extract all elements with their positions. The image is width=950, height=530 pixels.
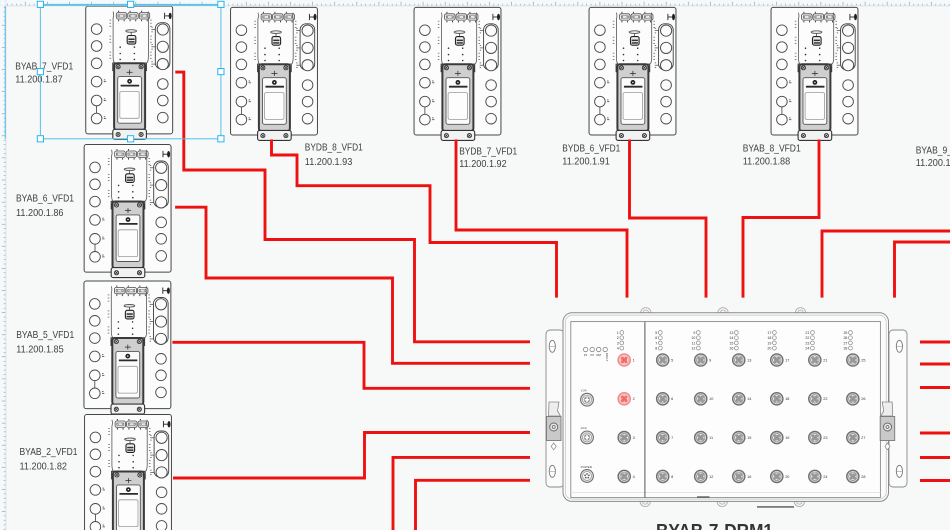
svg-text:BYAB_6_VFD1: BYAB_6_VFD1: [16, 193, 74, 204]
svg-text:11.200.1.91: 11.200.1.91: [562, 157, 610, 168]
svg-text:22: 22: [805, 336, 809, 340]
svg-text:11.200.1.86: 11.200.1.86: [16, 208, 64, 219]
svg-text:BYAB_7_VFD1: BYAB_7_VFD1: [15, 62, 73, 73]
svg-text:18: 18: [767, 336, 771, 340]
svg-text:25: 25: [861, 358, 865, 362]
svg-text:3: 3: [633, 436, 635, 440]
svg-text:12: 12: [709, 475, 713, 479]
svg-text:12: 12: [691, 347, 695, 351]
svg-text:7: 7: [655, 341, 657, 345]
svg-text:11: 11: [692, 341, 696, 345]
svg-text:6: 6: [655, 336, 657, 340]
svg-text:22: 22: [823, 397, 827, 401]
svg-text:8: 8: [671, 475, 673, 479]
svg-text:11.200.1.87: 11.200.1.87: [15, 74, 63, 85]
svg-text:20: 20: [767, 347, 771, 351]
svg-text:19: 19: [785, 436, 789, 440]
svg-text:27: 27: [843, 341, 847, 345]
svg-text:4: 4: [617, 347, 619, 351]
svg-text:11.200.1.88: 11.200.1.88: [743, 157, 791, 168]
svg-text:28: 28: [861, 475, 865, 479]
svg-text:BYAB-7-DRM1: BYAB-7-DRM1: [656, 521, 773, 530]
svg-text:11.200.1.85: 11.200.1.85: [16, 344, 64, 355]
svg-text:4: 4: [633, 475, 635, 479]
svg-text:7: 7: [671, 436, 673, 440]
svg-text:P1: P1: [584, 353, 588, 357]
svg-text:21: 21: [805, 331, 809, 335]
svg-text:BYAB_9_VFD1: BYAB_9_VFD1: [916, 145, 950, 156]
svg-text:5: 5: [671, 358, 673, 362]
svg-text:14: 14: [729, 336, 733, 340]
svg-text:P2: P2: [590, 353, 594, 357]
svg-text:15: 15: [747, 436, 751, 440]
svg-text:5: 5: [655, 331, 657, 335]
svg-text:2: 2: [617, 336, 619, 340]
svg-text:26: 26: [843, 336, 847, 340]
svg-text:RM: RM: [597, 353, 602, 357]
svg-text:14: 14: [747, 397, 751, 401]
svg-text:10: 10: [709, 397, 713, 401]
svg-text:9: 9: [693, 331, 695, 335]
svg-text:17: 17: [785, 358, 789, 362]
svg-text:2: 2: [633, 397, 635, 401]
svg-text:26: 26: [861, 397, 865, 401]
svg-text:28: 28: [843, 347, 847, 351]
svg-text:BYDB_7_VFD1: BYDB_7_VFD1: [459, 146, 517, 157]
svg-text:11.200.1.89: 11.200.1.89: [916, 158, 950, 169]
svg-text:1: 1: [617, 331, 619, 335]
svg-text:13: 13: [747, 358, 751, 362]
svg-text:24: 24: [805, 347, 809, 351]
svg-text:17: 17: [767, 331, 771, 335]
svg-text:11.200.1.93: 11.200.1.93: [305, 157, 353, 168]
svg-text:24: 24: [823, 475, 827, 479]
svg-text:BYDB_8_VFD1: BYDB_8_VFD1: [305, 143, 363, 154]
svg-text:11: 11: [709, 436, 713, 440]
svg-text:6: 6: [671, 397, 673, 401]
svg-text:3: 3: [617, 341, 619, 345]
svg-text:BYAB_5_VFD1: BYAB_5_VFD1: [16, 330, 74, 341]
svg-text:16: 16: [729, 347, 733, 351]
svg-text:19: 19: [767, 341, 771, 345]
svg-text:9: 9: [709, 358, 711, 362]
svg-text:8: 8: [655, 347, 657, 351]
svg-text:15: 15: [729, 341, 733, 345]
svg-text:ACA: ACA: [581, 426, 587, 430]
svg-text:10: 10: [691, 336, 695, 340]
svg-text:1: 1: [633, 358, 635, 362]
svg-text:21: 21: [823, 358, 827, 362]
svg-text:BYDB_6_VFD1: BYDB_6_VFD1: [562, 144, 620, 155]
svg-text:POWER: POWER: [581, 465, 593, 469]
svg-text:11.200.1.82: 11.200.1.82: [20, 461, 68, 472]
svg-text:27: 27: [861, 436, 865, 440]
svg-text:BYAB_8_VFD1: BYAB_8_VFD1: [743, 144, 801, 155]
svg-text:25: 25: [843, 331, 847, 335]
svg-text:18: 18: [785, 397, 789, 401]
svg-text:11.200.1.92: 11.200.1.92: [459, 159, 507, 170]
svg-text:BYAB_2_VFD1: BYAB_2_VFD1: [20, 447, 78, 458]
svg-text:20: 20: [785, 475, 789, 479]
svg-text:FAULT: FAULT: [605, 353, 609, 362]
svg-text:16: 16: [747, 475, 751, 479]
svg-text:13: 13: [729, 331, 733, 335]
svg-text:23: 23: [823, 436, 827, 440]
svg-text:23: 23: [805, 341, 809, 345]
svg-text:V.24: V.24: [581, 388, 587, 392]
